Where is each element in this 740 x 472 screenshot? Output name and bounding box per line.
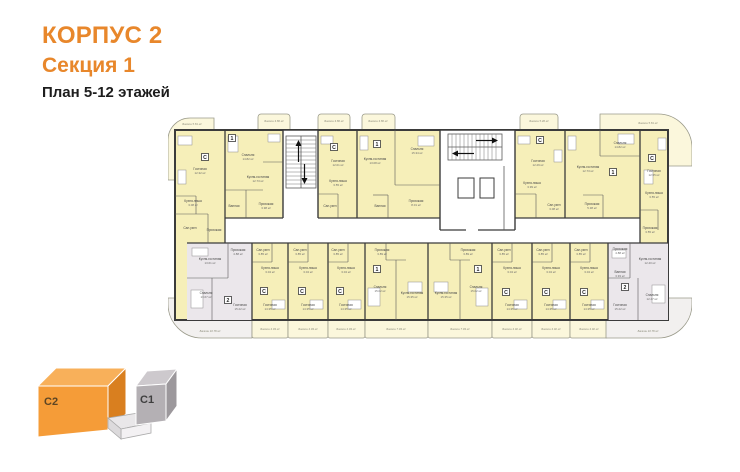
room-area-label: 14.35 м²: [341, 307, 352, 311]
apartment-type-badge-letter: 1: [612, 170, 615, 176]
balcony-label: Балкон 7.03 м²: [386, 327, 406, 331]
floor-plan: Балкон 5.81 м²Балкон 3.80 м²Балкон 3.80 …: [168, 110, 692, 342]
furniture: [192, 248, 208, 256]
room-area-label: 12.32 м²: [195, 171, 206, 175]
apartment-type-badge-letter: 1: [477, 267, 480, 273]
furniture: [568, 136, 576, 150]
room-label: Сан.узел: [323, 204, 336, 208]
c2-front-face: [38, 386, 108, 437]
room-area-label: 15.22 м²: [615, 307, 626, 311]
room-area-label: 3.85 м²: [295, 252, 304, 256]
room-area-label: 12.73 м²: [583, 169, 594, 173]
room-area-label: 3.08 м²: [549, 207, 558, 211]
legend-block-c1[interactable]: C1: [136, 369, 177, 425]
apartment-type-badge-letter: С: [338, 289, 342, 295]
room-area-label: 15.34 м²: [412, 151, 423, 155]
room-area-label: 15.22 м²: [235, 307, 246, 311]
furniture: [360, 136, 368, 150]
balcony-label: Балкон 5.46 м²: [529, 119, 549, 123]
room-area-label: 13.67 м²: [201, 295, 212, 299]
apartment-type-badge-letter: С: [544, 290, 548, 296]
legend-c1-label: C1: [140, 394, 154, 406]
room-area-label: 3.08 м²: [188, 203, 197, 207]
balcony-label: Балкон 4.03 м²: [298, 327, 318, 331]
room-area-label: 3.04 м²: [584, 270, 593, 274]
apartment-type-badge-letter: 1: [231, 136, 234, 142]
room-area-label: 14.35 м²: [546, 307, 557, 311]
room-area-label: 12.29 м²: [533, 163, 544, 167]
room-area-label: 3.89 м²: [463, 252, 472, 256]
room-area-label: 8.01 м²: [411, 203, 420, 207]
room-area-label: 3.04 м²: [507, 270, 516, 274]
apartment-type-badge-letter: С: [332, 145, 336, 151]
room-area-label: 15.35 м²: [441, 295, 452, 299]
furniture: [178, 170, 186, 184]
room-area-label: 3.89 м²: [377, 252, 386, 256]
furniture: [268, 134, 280, 142]
room-area-label: 12.01 м²: [333, 163, 344, 167]
room-area-label: 12.73 м²: [253, 179, 264, 183]
floor-plan-svg: Балкон 5.81 м²Балкон 3.80 м²Балкон 3.80 …: [168, 110, 692, 342]
room-area-label: 3.04 м²: [265, 270, 274, 274]
balcony-label: Балкон 10.76 м²: [638, 329, 660, 333]
room-area-label: 14.35 м²: [584, 307, 595, 311]
room-area-label: 3.04 м²: [546, 270, 555, 274]
building-title: КОРПУС 2: [42, 20, 170, 52]
room-area-label: 14.82 м²: [243, 157, 254, 161]
balcony-label: Балкон 7.03 м²: [450, 327, 470, 331]
room-area-label: 3.85 м²: [538, 252, 547, 256]
room-area-label: 13.08 м²: [370, 161, 381, 165]
furniture: [554, 150, 562, 162]
section-legend-svg: C2 C1: [28, 358, 192, 458]
room-area-label: 14.82 м²: [615, 145, 626, 149]
balcony-label: Балкон 5.81 м²: [182, 122, 202, 126]
room-area-label: 12.55 м²: [649, 173, 660, 177]
room-label: Прихожая: [207, 228, 222, 232]
room-label: Сан.узел: [183, 226, 196, 230]
room-area-label: 12.47 м²: [647, 297, 658, 301]
room-area-label: 3.99 м²: [527, 185, 536, 189]
page-header: КОРПУС 2 Секция 1 План 5-12 этажей: [42, 20, 170, 102]
balcony-label: Балкон 4.02 м²: [541, 327, 561, 331]
floors-subtitle: План 5-12 этажей: [42, 83, 170, 103]
balcony-label: Балкон 3.80 м²: [368, 119, 388, 123]
room-area-label: 12.40 м²: [645, 261, 656, 265]
room-area-label: 15.02 м²: [471, 289, 482, 293]
apartment-type-badge-letter: 1: [376, 267, 379, 273]
room-label: Ванная: [375, 204, 386, 208]
room-area-label: 3.85 м²: [333, 252, 342, 256]
furniture: [321, 136, 333, 144]
furniture: [658, 138, 666, 150]
room-area-label: 3.55 м²: [649, 195, 658, 199]
room-area-label: 3.85 м²: [499, 252, 508, 256]
room-area-label: 3.04 м²: [341, 270, 350, 274]
apartment-type-badge-letter: 2: [624, 285, 627, 291]
apartment-type-badge-letter: 2: [227, 298, 230, 304]
elevator: [480, 178, 494, 198]
furniture: [178, 136, 192, 145]
room-area-label: 15.35 м²: [407, 295, 418, 299]
room-area-label: 5.38 м²: [587, 206, 596, 210]
apartment-type-badge-letter: С: [582, 290, 586, 296]
apartment-type-badge-letter: 1: [376, 142, 379, 148]
legend-c2-label: C2: [44, 396, 58, 408]
elevator: [458, 178, 474, 198]
apartment-type-badge-letter: С: [300, 289, 304, 295]
furniture: [418, 136, 434, 146]
apartment-type-badge-letter: С: [203, 155, 207, 161]
room-area-label: 4.88 м²: [615, 251, 624, 255]
balcony-label: Балкон 3.80 м²: [264, 119, 284, 123]
balcony-label: Балкон 4.03 м²: [336, 327, 356, 331]
room-area-label: 3.85 м²: [258, 252, 267, 256]
room-area-label: 3.04 м²: [303, 270, 312, 274]
room-area-label: 3.55 м²: [333, 183, 342, 187]
balcony-label: Балкон 4.03 м²: [260, 327, 280, 331]
room-area-label: 13.61 м²: [205, 261, 216, 265]
section-title: Секция 1: [42, 52, 170, 80]
room-area-label: 15.02 м²: [375, 289, 386, 293]
balcony-label: Балкон 4.02 м²: [502, 327, 522, 331]
room-area-label: 14.35 м²: [265, 307, 276, 311]
balcony-label: Балкон 10.76 м²: [200, 329, 222, 333]
room-area-label: 3.98 м²: [261, 206, 270, 210]
room-area-label: 3.93 м²: [615, 274, 624, 278]
apartment-type-badge-letter: С: [538, 138, 542, 144]
room-area-label: 3.55 м²: [645, 230, 654, 234]
apartment-type-badge-letter: С: [262, 289, 266, 295]
room-area-label: 14.35 м²: [303, 307, 314, 311]
balcony-label: Балкон 4.02 м²: [579, 327, 599, 331]
furniture: [518, 136, 530, 144]
balcony-label: Балкон 5.81 м²: [638, 121, 658, 125]
balcony-label: Балкон 3.80 м²: [324, 119, 344, 123]
corridor: [225, 218, 640, 243]
room-label: Ванная: [229, 204, 240, 208]
room-area-label: 3.85 м²: [576, 252, 585, 256]
room-area-label: 4.88 м²: [233, 252, 242, 256]
apartment-type-badge-letter: С: [650, 156, 654, 162]
section-legend: C2 C1: [28, 358, 192, 458]
apartment-type-badge-letter: С: [504, 290, 508, 296]
room-area-label: 14.35 м²: [507, 307, 518, 311]
